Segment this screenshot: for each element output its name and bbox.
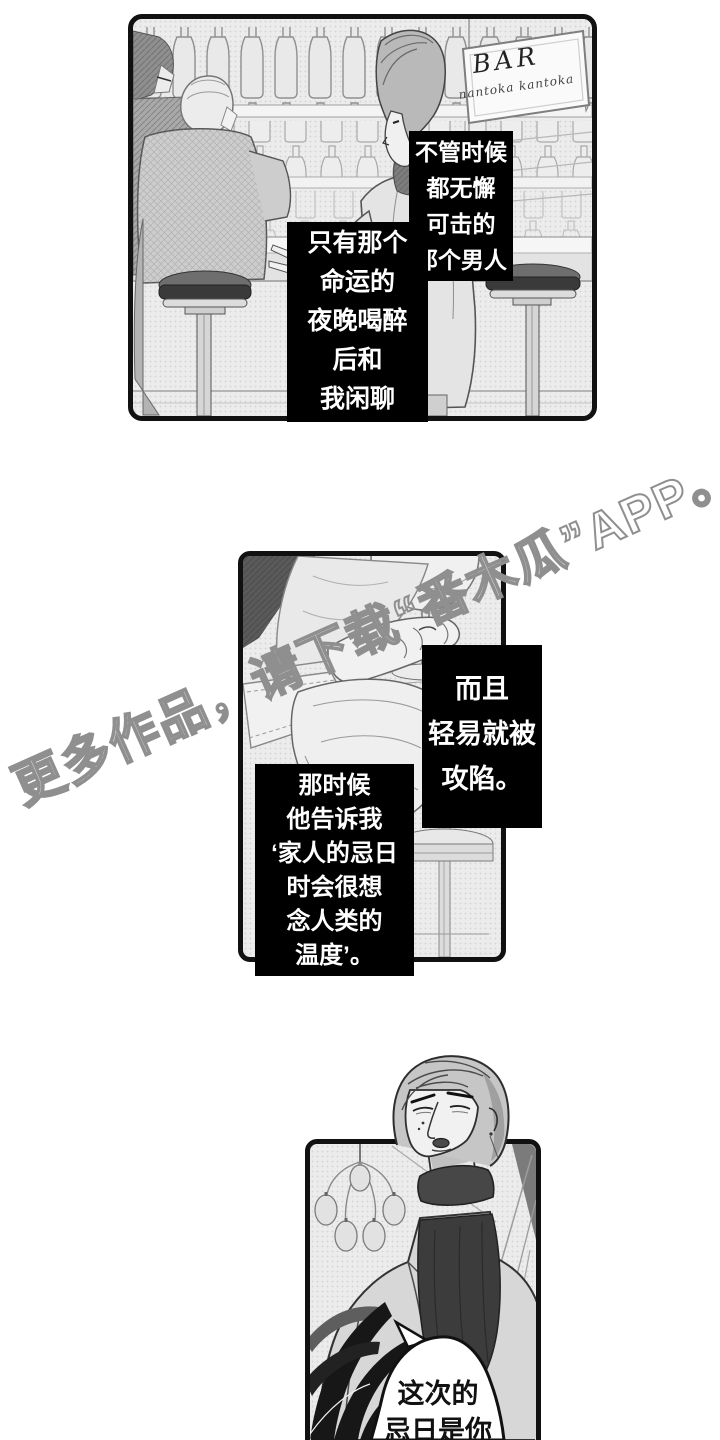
caption-line: 而且 [422,667,542,712]
caption-line: 轻易就被 [422,712,542,757]
bar-stool-right [486,264,580,416]
caption-easily-conquered: 而且 轻易就被 攻陷。 [422,645,542,828]
caption-line: 只有那个 [287,224,428,263]
caption-line: 那时候 [255,769,414,803]
caption-line: 我闲聊 [287,380,428,419]
caption-line: 念人类的 [255,905,414,939]
caption-line: 都无懈 [409,170,513,206]
caption-line: 温度’。 [255,939,414,973]
caption-line: 不管时候 [409,134,513,170]
bubble-line: 这次的 [371,1376,505,1413]
caption-line: 攻陷。 [422,757,542,802]
man-head-art [394,1056,509,1205]
speech-bubble-text: 这次的 忌日是你 [371,1376,505,1440]
bar-stool-left [159,271,251,416]
caption-line: ‘家人的忌日 [255,837,414,871]
caption-he-told-me: 那时候 他告诉我 ‘家人的忌日 时会很想 念人类的 温度’。 [255,764,414,976]
caption-line: 命运的 [287,263,428,302]
caption-line: 后和 [287,341,428,380]
caption-line: 时会很想 [255,871,414,905]
caption-line: 夜晚喝醉 [287,302,428,341]
caption-fateful-night: 只有那个 命运的 夜晚喝醉 后和 我闲聊 [287,222,428,422]
bubble-line: 忌日是你 [371,1413,505,1440]
caption-line: 他告诉我 [255,803,414,837]
comic-page: BAR nantoka kantoka 不管时候 都无懈 可击的 那个男人 只有… [0,0,720,1440]
